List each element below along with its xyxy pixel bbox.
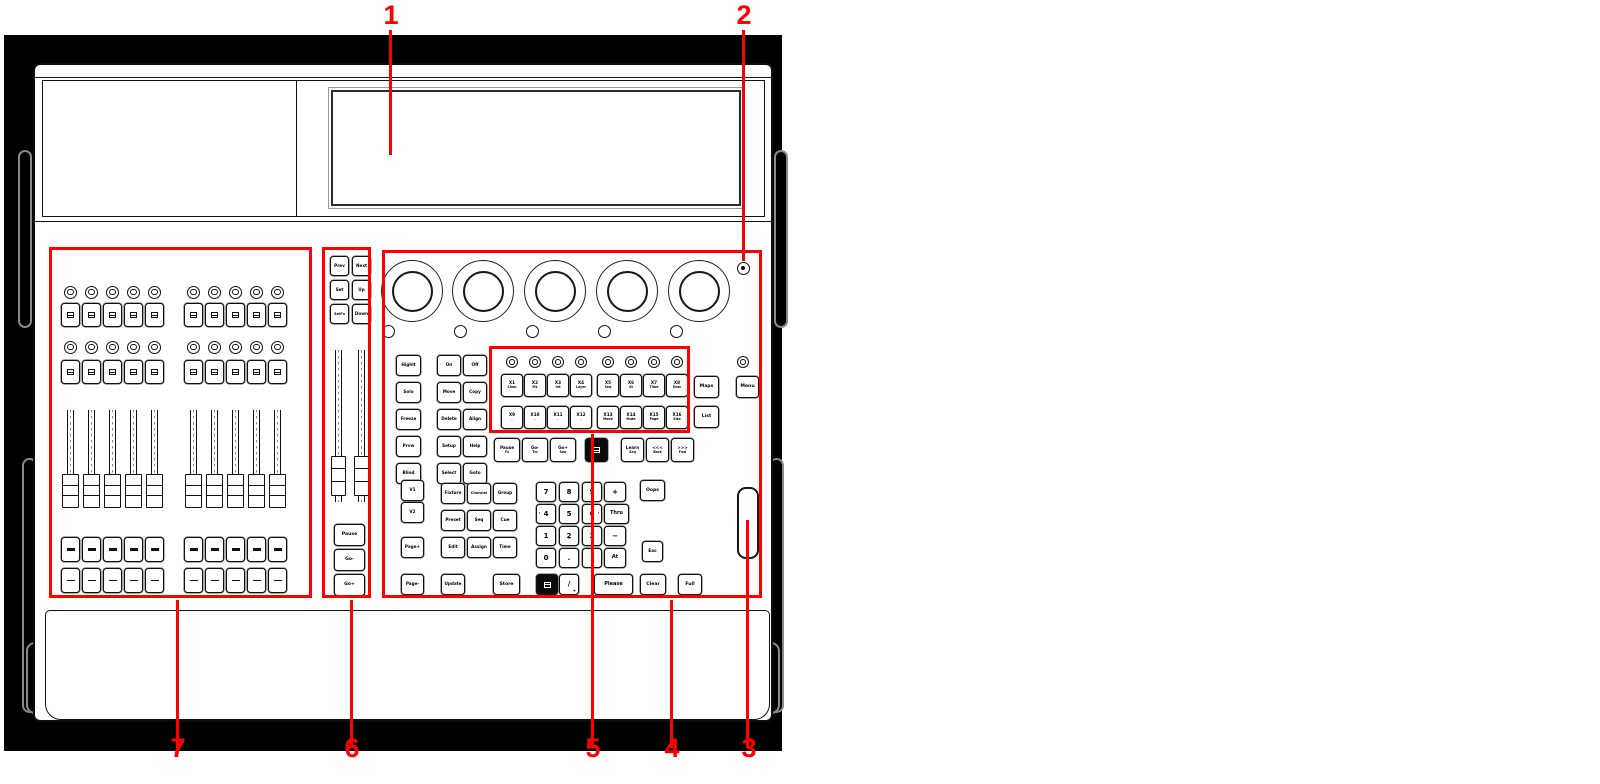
callout-number-3: 3 (741, 735, 756, 762)
callout-number-7: 7 (170, 735, 185, 762)
top-seam-line (33, 77, 773, 78)
lcd-screen (331, 90, 741, 206)
callout-line-3 (746, 520, 749, 748)
region-5-x-keys (489, 346, 690, 433)
callout-number-5: 5 (585, 735, 600, 762)
wrist-rest (45, 610, 770, 720)
face-seam-line (33, 221, 773, 222)
callout-line-5 (591, 434, 594, 748)
callout-number-6: 6 (344, 735, 359, 762)
lighting-console-diagram: PrevNextSetUpSelFxDownPauseGo-Go+HighltS… (0, 0, 1600, 784)
region-7-fader-bank (49, 247, 312, 598)
callout-line-1 (389, 30, 392, 155)
deck-divider (296, 80, 297, 217)
callout-line-6 (350, 600, 353, 748)
side-handle (18, 150, 32, 328)
region-6-main-playback (322, 247, 371, 598)
callout-line-7 (176, 600, 179, 748)
callout-number-2: 2 (736, 2, 751, 29)
callout-number-4: 4 (664, 735, 679, 762)
callout-line-4 (670, 600, 673, 748)
callout-line-2 (742, 30, 745, 261)
side-handle (774, 150, 788, 328)
callout-number-1: 1 (383, 2, 398, 29)
